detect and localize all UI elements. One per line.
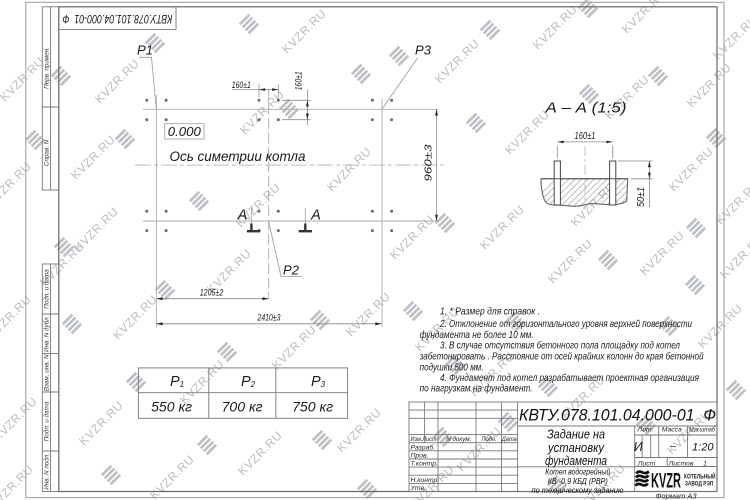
svg-text:–: – [669, 441, 676, 452]
svg-text:1: 1 [703, 461, 707, 468]
svg-text:KVZR.RU: KVZR.RU [545, 236, 595, 286]
svg-text:Подп. и дата: Подп. и дата [43, 269, 51, 309]
svg-text:KVZR.RU: KVZR.RU [713, 177, 750, 227]
svg-text:забетонировать . Расстояние от: забетонировать . Расстояние от осей край… [419, 352, 704, 363]
svg-text:KVZR.RU: KVZR.RU [147, 452, 197, 500]
svg-text:Н.контр.: Н.контр. [411, 477, 440, 484]
svg-text:KVZR: KVZR [651, 469, 681, 492]
svg-text:KVZR.RU: KVZR.RU [334, 405, 384, 455]
svg-text:50±1: 50±1 [636, 187, 647, 207]
svg-text:Т.контр.: Т.контр. [411, 461, 439, 468]
svg-text:P1: P1 [137, 43, 153, 58]
svg-text:700 кг: 700 кг [222, 400, 263, 415]
svg-text:А: А [310, 208, 321, 224]
svg-text:KVZR.RU: KVZR.RU [0, 159, 34, 209]
svg-text:фундамента: фундамента [545, 454, 607, 468]
svg-text:P3: P3 [311, 374, 326, 390]
svg-text:KVZR.RU: KVZR.RU [695, 301, 745, 351]
svg-text:Разраб.: Разраб. [411, 443, 436, 451]
svg-text:KVZR.RU: KVZR.RU [387, 212, 437, 262]
svg-text:P3: P3 [415, 43, 432, 58]
svg-text:750 кг: 750 кг [292, 400, 333, 415]
svg-text:P1: P1 [170, 374, 184, 390]
svg-text:КВ -0,9 КБД (РВР): КВ -0,9 КБД (РВР) [548, 477, 608, 486]
svg-text:Утв.: Утв. [410, 485, 427, 492]
svg-text:1:20: 1:20 [692, 442, 714, 454]
svg-text:1. * Размер для справок .: 1. * Размер для справок . [440, 306, 540, 317]
svg-text:KVZR.RU: KVZR.RU [530, 2, 580, 52]
svg-text:160±1: 160±1 [293, 71, 304, 90]
svg-text:550 кг: 550 кг [151, 400, 192, 415]
svg-text:KVZR.RU: KVZR.RU [68, 132, 118, 182]
svg-text:Подп.: Подп. [481, 435, 496, 443]
svg-text:КВТУ.078.101.04.000-01 Ф: КВТУ.078.101.04.000-01 Ф [62, 12, 172, 26]
svg-text:фундамента не более 10 мм.: фундамента не более 10 мм. [420, 330, 534, 341]
svg-text:160±1: 160±1 [232, 80, 251, 91]
svg-text:KVZR.RU: KVZR.RU [76, 398, 126, 448]
svg-text:3. В случае отсутствия бетонно: 3. В случае отсутствия бетонного пола пл… [440, 341, 680, 352]
svg-text:KVZR.RU: KVZR.RU [619, 0, 669, 36]
svg-text:KVZR.RU: KVZR.RU [324, 144, 374, 194]
svg-text:KVZR.RU: KVZR.RU [0, 462, 36, 500]
svg-text:KVZR.RU: KVZR.RU [717, 231, 750, 281]
svg-text:N докум.: N докум. [446, 435, 471, 443]
svg-text:KVZR.RU: KVZR.RU [432, 36, 482, 86]
svg-text:KVZR.RU: KVZR.RU [477, 202, 527, 252]
svg-text:KVZR.RU: KVZR.RU [0, 292, 34, 342]
svg-text:А: А [237, 208, 248, 224]
svg-text:Ось симетрии котла: Ось симетрии котла [170, 148, 306, 164]
svg-text:Лист: Лист [637, 461, 656, 468]
svg-text:KVZR.RU: KVZR.RU [710, 12, 750, 62]
svg-text:KVZR.RU: KVZR.RU [666, 144, 716, 194]
svg-text:Перв. примен.: Перв. примен. [44, 47, 51, 89]
svg-text:установку: установку [547, 441, 605, 455]
svg-text:Справ. N: Справ. N [44, 139, 51, 166]
svg-text:KVZR.RU: KVZR.RU [279, 6, 329, 56]
svg-text:Взам. инв. N: Взам. инв. N [44, 354, 51, 391]
svg-text:Инв. N подл.: Инв. N подл. [43, 453, 51, 490]
svg-text:Лит.: Лит. [637, 426, 654, 433]
svg-text:KVZR.RU: KVZR.RU [0, 54, 47, 104]
svg-text:0.000: 0.000 [168, 124, 202, 139]
svg-text:KVZR.RU: KVZR.RU [0, 394, 40, 444]
svg-text:P2: P2 [283, 263, 300, 278]
svg-text:Задание на: Задание на [547, 428, 605, 442]
svg-text:Листов: Листов [668, 461, 694, 468]
svg-text:160±1: 160±1 [575, 131, 596, 142]
svg-text:KVZR.RU: KVZR.RU [237, 87, 287, 137]
svg-text:КОТЕЛЬНЫЙ: КОТЕЛЬНЫЙ [684, 472, 716, 480]
svg-text:KVZR.RU: KVZR.RU [269, 322, 319, 372]
svg-text:КВТУ.078.101.04.000-01 Ф: КВТУ.078.101.04.000-01 Ф [519, 406, 716, 425]
svg-text:Масса: Масса [662, 426, 682, 433]
svg-text:Подп. и дата: Подп. и дата [43, 401, 51, 441]
svg-text:подушки 500 мм.: подушки 500 мм. [420, 362, 484, 373]
svg-text:KVZR.RU: KVZR.RU [637, 228, 687, 278]
svg-text:KVZR.RU: KVZR.RU [92, 56, 142, 106]
svg-text:Котел водогрейный: Котел водогрейный [545, 468, 610, 477]
svg-text:Формат А3: Формат А3 [655, 492, 697, 500]
svg-text:KVZR.RU: KVZR.RU [343, 289, 393, 339]
svg-text:ЗАВОД РЭП: ЗАВОД РЭП [685, 481, 714, 487]
svg-text:KVZR.RU: KVZR.RU [684, 60, 734, 110]
svg-text:Инв. N дубл.: Инв. N дубл. [43, 316, 51, 352]
svg-text:Дата: Дата [501, 436, 517, 443]
svg-text:KVZR.RU: KVZR.RU [110, 292, 160, 342]
svg-text:1205±2: 1205±2 [200, 288, 224, 299]
svg-text:P2: P2 [241, 374, 256, 390]
svg-text:по техническому заданию: по техническому заданию [532, 486, 624, 495]
svg-text:Изм.Лист: Изм.Лист [411, 436, 437, 443]
svg-text:А – А (1:5): А – А (1:5) [544, 101, 626, 117]
svg-text:KVZR.RU: KVZR.RU [235, 428, 285, 478]
svg-text:960±3: 960±3 [424, 144, 435, 182]
svg-text:Масштаб: Масштаб [689, 426, 716, 434]
svg-text:Пров.: Пров. [411, 452, 429, 459]
svg-text:И: И [634, 440, 643, 454]
svg-text:2410±3: 2410±3 [257, 312, 281, 323]
svg-text:2. Отклонение от горизонтально: 2. Отклонение от горизонтального уровня … [439, 319, 692, 330]
svg-text:по нагрузкам на фундамент.: по нагрузкам на фундамент. [420, 384, 533, 395]
